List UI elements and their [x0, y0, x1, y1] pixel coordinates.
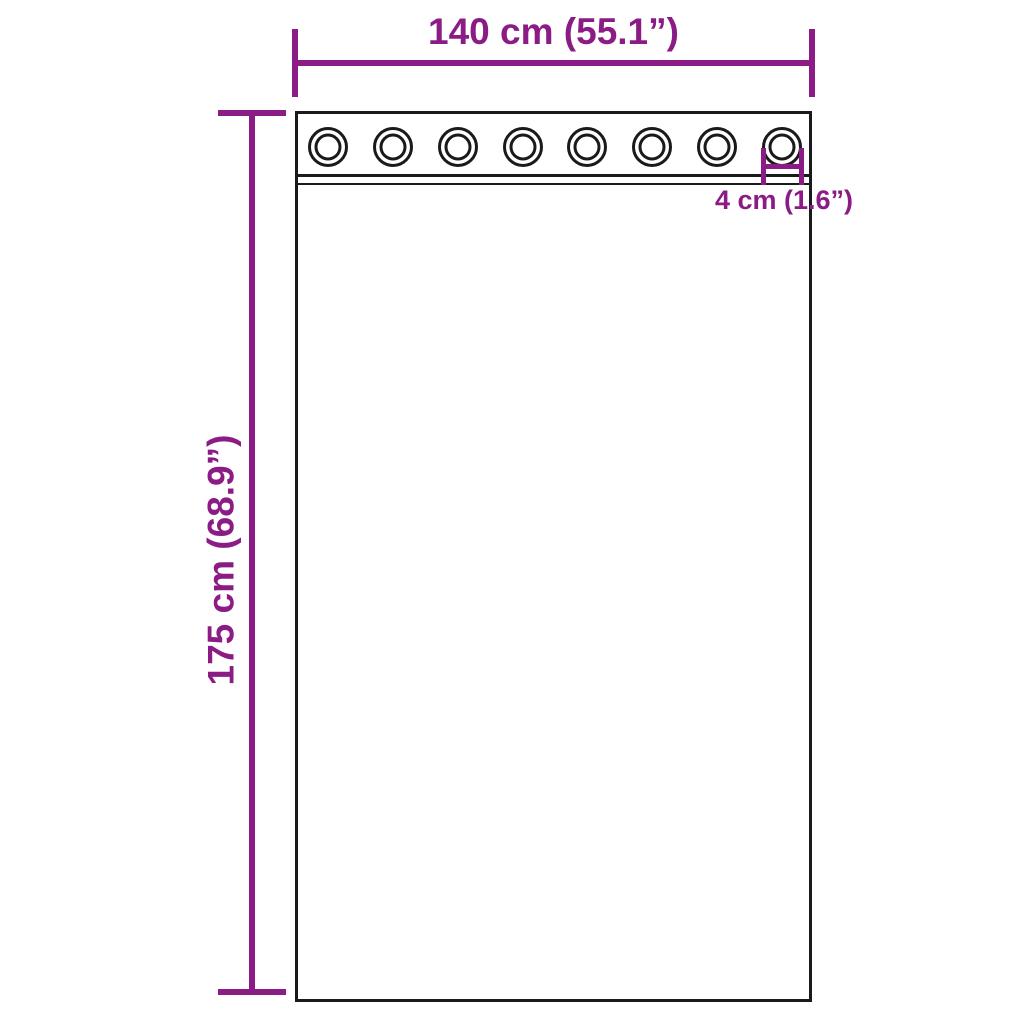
grommet-inner-ring — [574, 134, 601, 161]
grommet-icon — [697, 127, 737, 167]
grommet-icon — [567, 127, 607, 167]
width-dimension-line — [295, 60, 812, 66]
grommet-icon — [373, 127, 413, 167]
grommet-inner-ring — [704, 134, 731, 161]
grommet-dimension-line — [761, 164, 804, 169]
height-dimension-label: 175 cm (68.9”) — [203, 435, 240, 686]
grommet-inner-ring — [639, 134, 666, 161]
grommet-inner-ring — [444, 134, 471, 161]
grommet-inner-ring — [379, 134, 406, 161]
grommet-diameter-label: 4 cm (1.6”) — [715, 187, 853, 214]
height-dimension-top-cap — [218, 110, 286, 116]
height-dimension-line — [249, 112, 255, 992]
curtain-panel — [295, 111, 812, 1002]
grommet-icon — [503, 127, 543, 167]
grommet-icon — [438, 127, 478, 167]
grommet-inner-ring — [315, 134, 342, 161]
grommet-icon — [308, 127, 348, 167]
grommet-icon — [632, 127, 672, 167]
grommet-icon — [762, 127, 802, 167]
curtain-dimension-diagram: 140 cm (55.1”) 175 cm (68.9”) 4 cm (1.6”… — [0, 0, 1024, 1024]
height-dimension-bottom-cap — [218, 989, 286, 995]
header-band-line-top — [298, 174, 809, 177]
grommet-inner-ring — [509, 134, 536, 161]
width-dimension-label: 140 cm (55.1”) — [295, 13, 812, 50]
grommet-inner-ring — [768, 134, 795, 161]
